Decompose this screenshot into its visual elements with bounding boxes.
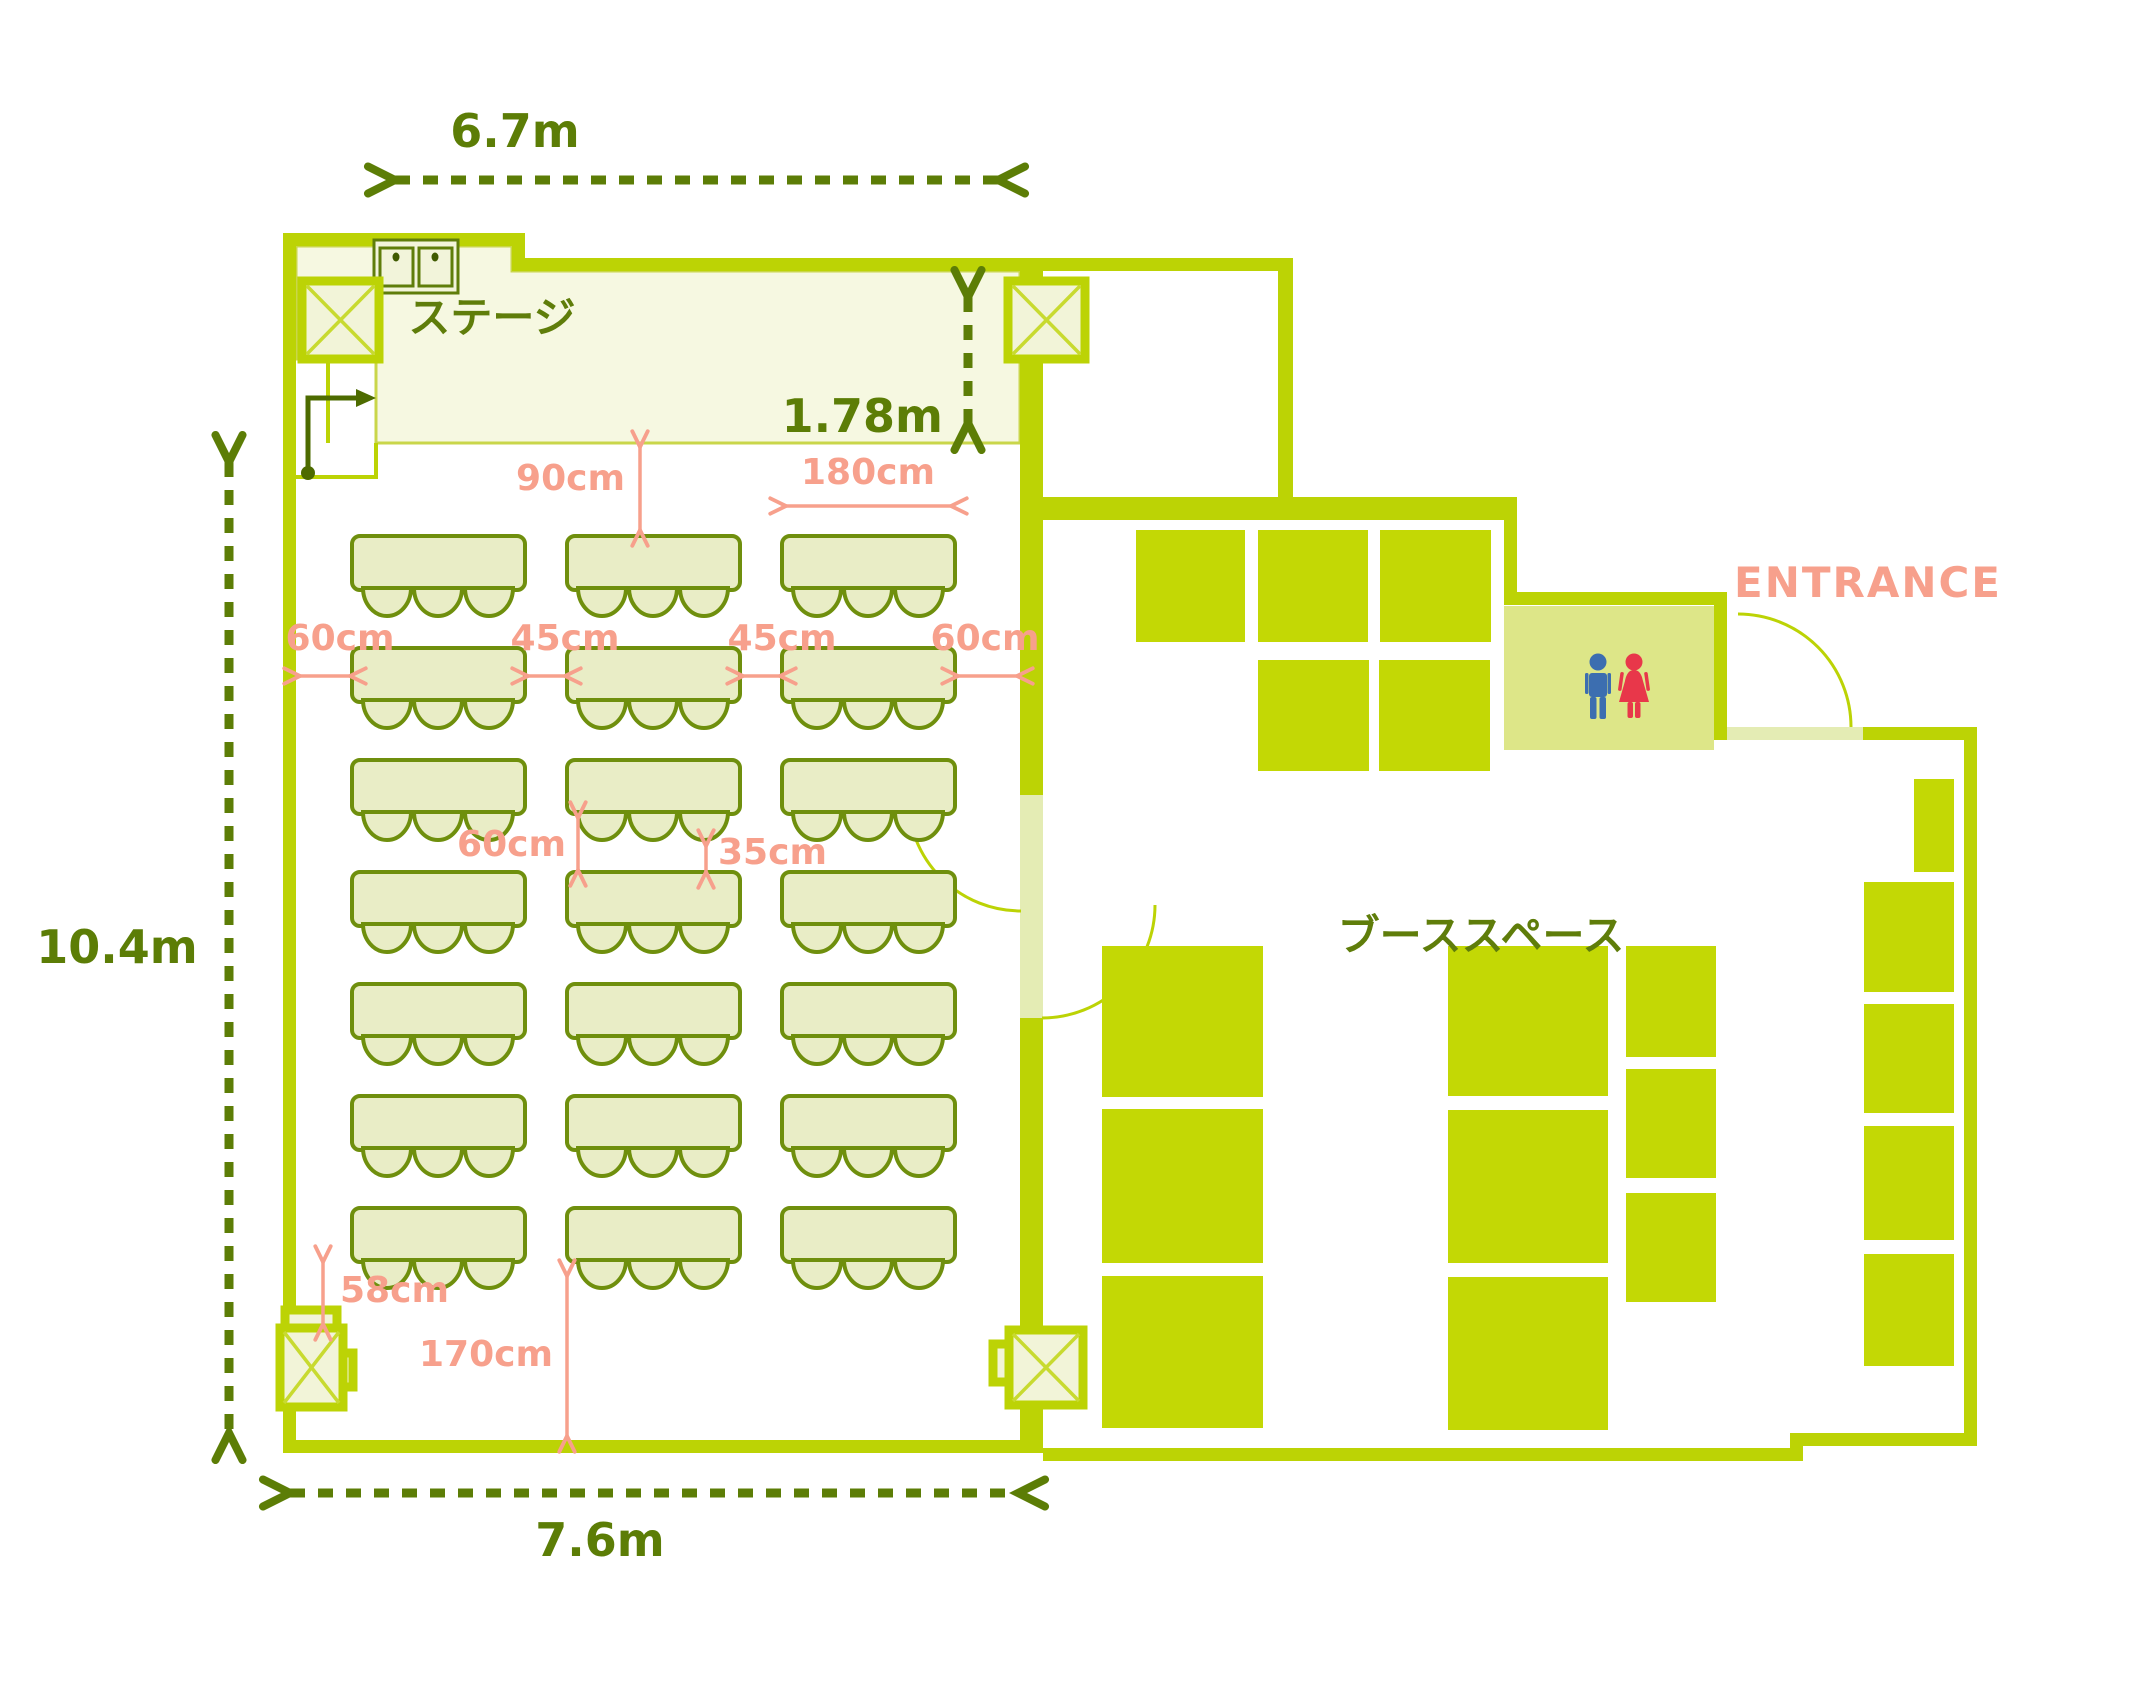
pillar [302, 281, 379, 359]
seminar-table [782, 872, 955, 952]
seminar-table [352, 984, 525, 1064]
wall-segment [283, 1440, 1043, 1453]
dim-label-6-7m: 6.7m [450, 104, 579, 158]
seminar-seating [352, 536, 955, 1288]
booth-block [1258, 660, 1369, 771]
booth-block [1626, 1069, 1716, 1178]
dim-label-10-4m: 10.4m [36, 920, 197, 974]
booth-block [1626, 946, 1716, 1057]
dim-label-60cm-row: 60cm [457, 824, 566, 865]
wall-segment [283, 233, 296, 1452]
seminar-table [352, 1096, 525, 1176]
wall-segment [1863, 727, 1977, 740]
entrance-label: ENTRANCE [1734, 558, 2002, 607]
dim-label-45cm-1: 45cm [511, 618, 620, 659]
booth-block [1864, 1254, 1954, 1366]
booth-block [1864, 882, 1954, 992]
toilet-area [1504, 606, 1714, 750]
wall-segment [1964, 727, 1977, 1446]
dim-label-170cm: 170cm [419, 1334, 553, 1375]
wall-segment [1504, 497, 1517, 605]
dim-label-1-78m: 1.78m [782, 389, 943, 443]
entrance-door-arc [1738, 614, 1851, 727]
seminar-table [352, 872, 525, 952]
booth-block [1448, 1110, 1608, 1263]
seminar-table [782, 760, 955, 840]
dim-label-90cm: 90cm [516, 458, 625, 499]
booth-block [1380, 530, 1491, 642]
pillar-mid-wall [993, 1330, 1083, 1405]
entrance-door-leaf [1727, 727, 1863, 740]
booth-block [1626, 1193, 1716, 1302]
dim-label-7-6m: 7.6m [535, 1513, 664, 1567]
booth-block [1448, 1277, 1608, 1430]
seminar-table [567, 1208, 740, 1288]
seminar-table [782, 1096, 955, 1176]
dim-label-58cm: 58cm [340, 1270, 449, 1311]
seminar-table [567, 760, 740, 840]
booth-block [1448, 946, 1608, 1096]
dim-label-45cm-2: 45cm [728, 618, 837, 659]
seminar-table [782, 536, 955, 616]
booth-block [1258, 530, 1368, 642]
dim-label-35cm: 35cm [718, 832, 827, 873]
seminar-table [567, 536, 740, 616]
cable-route-arrow [301, 389, 376, 480]
booth-block [1102, 1109, 1263, 1263]
stage-steps [290, 359, 376, 477]
dim-label-60cm-left: 60cm [286, 618, 395, 659]
seminar-table [567, 648, 740, 728]
pillar-projector [280, 1310, 353, 1407]
seminar-table [567, 1096, 740, 1176]
wall-segment [1020, 497, 1517, 520]
stage-label: ステージ [408, 293, 575, 342]
booth-block [1136, 530, 1245, 642]
wall-segment [1043, 1448, 1803, 1461]
wall-segment [1278, 271, 1293, 510]
booth-block [1864, 1004, 1954, 1113]
booth-block [1864, 1126, 1954, 1240]
seminar-table [782, 1208, 955, 1288]
seminar-table [352, 648, 525, 728]
booth-block [1102, 1276, 1263, 1428]
speaker-cabinets [374, 240, 458, 293]
seminar-table [567, 984, 740, 1064]
wall-segment [1714, 592, 1727, 740]
booth-block [1379, 660, 1490, 771]
booth-block [1102, 946, 1263, 1097]
seminar-table [782, 984, 955, 1064]
seminar-table [782, 648, 955, 728]
dim-label-180cm: 180cm [801, 452, 935, 493]
booth-block [1914, 779, 1954, 872]
dim-label-60cm-right: 60cm [931, 618, 1040, 659]
wall-segment [512, 258, 1293, 271]
wall-segment [1790, 1433, 1977, 1446]
booth-space-label: ブーススペース [1338, 911, 1625, 960]
floor-plan: 90cm 180cm 60cm 45cm 45cm 60cm 60cm 35cm… [0, 0, 2134, 1680]
seminar-table [567, 872, 740, 952]
door-leaf [1020, 795, 1043, 1018]
seminar-table [352, 536, 525, 616]
pillar [1008, 281, 1085, 359]
wall-segment [1504, 592, 1727, 605]
